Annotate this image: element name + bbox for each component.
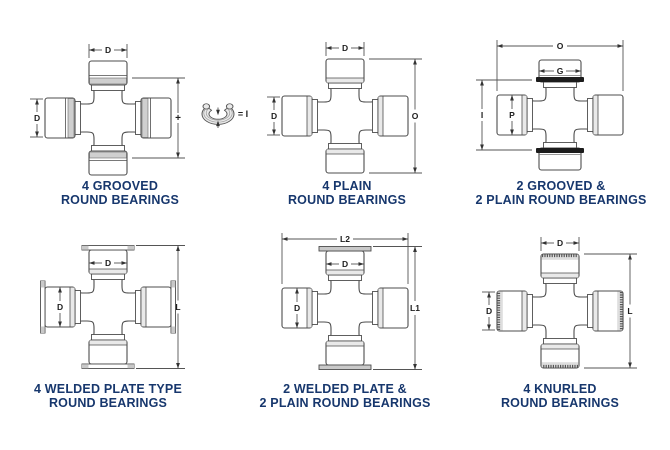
- caption-4-welded-plate: 4 WELDED PLATE TYPE ROUND BEARINGS: [0, 383, 220, 410]
- dimension-label: L: [175, 302, 180, 312]
- dimension-label: D: [34, 113, 40, 123]
- diagram-4-knurled-round-bearings: DDL: [482, 237, 637, 368]
- dimension-label: D: [105, 258, 111, 268]
- dimension-label: D: [105, 45, 111, 55]
- dimension-label: G: [557, 66, 564, 76]
- caption-line: 2 GROOVED &: [449, 180, 670, 194]
- diagram-4-grooved-round-bearings: DD+= I: [30, 44, 248, 175]
- caption-line: 4 WELDED PLATE TYPE: [0, 383, 220, 397]
- caption-line: ROUND BEARINGS: [8, 194, 232, 208]
- dimension-label: D: [486, 306, 492, 316]
- caption-2-welded-2-plain: 2 WELDED PLATE & 2 PLAIN ROUND BEARINGS: [233, 383, 457, 410]
- dimension-label: L: [627, 306, 632, 316]
- caption-line: 4 GROOVED: [8, 180, 232, 194]
- caption-line: 2 WELDED PLATE &: [233, 383, 457, 397]
- dimension-label: D: [557, 238, 563, 248]
- caption-4-plain: 4 PLAIN ROUND BEARINGS: [235, 180, 459, 207]
- caption-line: 2 PLAIN ROUND BEARINGS: [233, 397, 457, 411]
- dimension-label: O: [557, 41, 564, 51]
- dimension-label: P: [509, 110, 515, 120]
- caption-line: 2 PLAIN ROUND BEARINGS: [449, 194, 670, 208]
- dimension-label: L1: [410, 303, 420, 313]
- caption-line: ROUND BEARINGS: [235, 194, 459, 208]
- diagram-2-welded-plate-and-2-plain-round-bearings: L2DDL1: [282, 233, 422, 370]
- dimension-label: D: [271, 111, 277, 121]
- dimension-label: D: [342, 259, 348, 269]
- snap-ring-clip: = I: [202, 104, 248, 128]
- dimension-label: D: [342, 43, 348, 53]
- dimension-label: D: [57, 302, 63, 312]
- caption-line: ROUND BEARINGS: [0, 397, 220, 411]
- dimension-label: I: [481, 110, 483, 120]
- u-joint-bearing-types-figure: DD+= IDDOOGIPDDLL2DDL1DDL 4 GROOVED ROUN…: [0, 0, 670, 450]
- dimension-label: D: [294, 303, 300, 313]
- caption-4-knurled: 4 KNURLED ROUND BEARINGS: [448, 383, 670, 410]
- dimension-label: L2: [340, 234, 350, 244]
- dimension-label: +: [175, 113, 181, 124]
- diagram-4-welded-plate-type-round-bearings: DDL: [41, 246, 186, 369]
- caption-4-grooved: 4 GROOVED ROUND BEARINGS: [8, 180, 232, 207]
- dimension-label: O: [412, 111, 419, 121]
- caption-line: ROUND BEARINGS: [448, 397, 670, 411]
- dimension-label: = I: [238, 109, 248, 119]
- caption-line: 4 KNURLED: [448, 383, 670, 397]
- diagram-4-plain-round-bearings: DDO: [267, 42, 422, 173]
- diagram-2-grooved-and-2-plain-round-bearings: OGIP: [476, 40, 623, 170]
- caption-line: 4 PLAIN: [235, 180, 459, 194]
- caption-2-grooved-2-plain: 2 GROOVED & 2 PLAIN ROUND BEARINGS: [449, 180, 670, 207]
